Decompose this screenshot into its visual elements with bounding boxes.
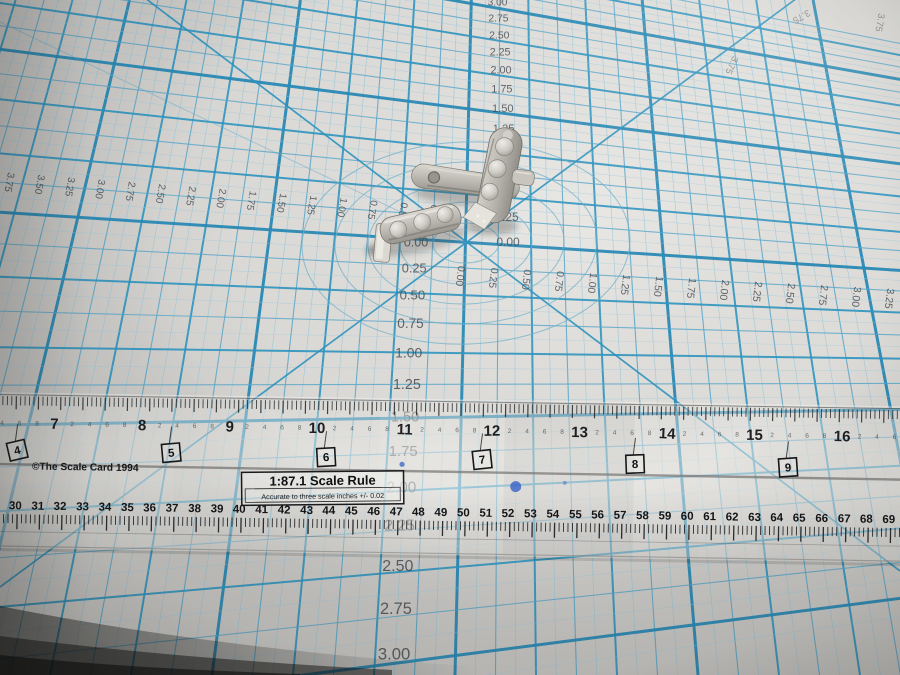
svg-text:4: 4 bbox=[438, 427, 442, 434]
ruler-bottom-number: 31 bbox=[31, 500, 45, 513]
ruler-bottom-number: 62 bbox=[726, 511, 739, 523]
ruler-title: 1:87.1 Scale Rule bbox=[269, 473, 375, 489]
svg-text:6: 6 bbox=[193, 423, 197, 430]
svg-text:6: 6 bbox=[18, 420, 22, 427]
ruler-bottom-number: 65 bbox=[793, 513, 806, 525]
svg-text:6: 6 bbox=[105, 422, 109, 429]
ruler-bottom-number: 57 bbox=[614, 510, 627, 522]
svg-text:2: 2 bbox=[683, 431, 687, 438]
ruler-bottom-number: 41 bbox=[255, 504, 268, 516]
svg-text:2: 2 bbox=[420, 427, 424, 434]
svg-text:8: 8 bbox=[632, 459, 639, 471]
grid-label: 2.00 bbox=[717, 279, 731, 301]
grid-label: 3.25 bbox=[882, 288, 896, 310]
ruler-bottom-number: 50 bbox=[457, 507, 470, 519]
ruler-bottom-number: 67 bbox=[837, 513, 850, 526]
svg-text:4: 4 bbox=[175, 423, 179, 430]
ruler-boxed-number: 8 bbox=[626, 455, 645, 474]
svg-text:4: 4 bbox=[263, 424, 267, 431]
svg-text:6: 6 bbox=[280, 424, 284, 431]
grid-label: 0.00 bbox=[496, 235, 520, 249]
svg-text:8: 8 bbox=[560, 429, 564, 436]
grid-label: 3.00 bbox=[378, 644, 410, 663]
ruler-boxed-number: 5 bbox=[161, 443, 181, 463]
svg-text:4: 4 bbox=[700, 431, 704, 438]
svg-text:8: 8 bbox=[735, 432, 739, 439]
svg-text:8: 8 bbox=[648, 430, 652, 437]
ruler-bottom-number: 68 bbox=[860, 514, 874, 526]
ruler-bottom-number: 46 bbox=[367, 506, 380, 518]
grid-label: 2.50 bbox=[783, 282, 797, 304]
grid-label: 3.00 bbox=[849, 286, 863, 308]
ruler-bottom-number: 55 bbox=[569, 509, 583, 522]
ruler-bottom-number: 69 bbox=[882, 514, 895, 526]
svg-text:6: 6 bbox=[718, 431, 722, 438]
ruler-bottom-number: 59 bbox=[658, 510, 671, 523]
grid-label: 1.00 bbox=[395, 345, 422, 361]
ruler-boxed-number: 7 bbox=[472, 450, 492, 470]
grid-label: 1.50 bbox=[651, 276, 665, 298]
ruler-bottom-number: 44 bbox=[322, 505, 336, 517]
ruler-bottom-number: 53 bbox=[524, 508, 537, 520]
ruler-top-number: 13 bbox=[571, 424, 588, 441]
svg-text:2: 2 bbox=[245, 424, 249, 431]
ruler-bottom-number: 33 bbox=[76, 501, 89, 513]
ruler-bottom-number: 35 bbox=[121, 502, 135, 515]
ruler-bottom-number: 60 bbox=[681, 511, 694, 523]
ruler-bottom-number: 49 bbox=[434, 507, 447, 519]
svg-text:6: 6 bbox=[630, 430, 634, 437]
grid-label: 2.75 bbox=[380, 600, 412, 618]
svg-text:4: 4 bbox=[0, 420, 4, 427]
ruler-bottom-number: 61 bbox=[703, 511, 716, 523]
svg-text:2: 2 bbox=[70, 421, 74, 428]
ruler-boxed-number: 6 bbox=[317, 448, 336, 467]
ruler-top-number: 14 bbox=[658, 425, 676, 443]
grid-label: 2.75 bbox=[488, 14, 508, 25]
grid-label: 0.25 bbox=[402, 260, 427, 275]
ruler-top-number: 12 bbox=[483, 423, 500, 440]
ruler-bottom-number: 37 bbox=[166, 503, 179, 515]
svg-text:8: 8 bbox=[123, 422, 127, 429]
ruler-bottom-number: 48 bbox=[412, 506, 426, 518]
svg-text:8: 8 bbox=[35, 421, 39, 428]
svg-text:4: 4 bbox=[88, 421, 92, 428]
ruler-top-number: 16 bbox=[833, 428, 850, 445]
ruler-title-box: 1:87.1 Scale Rule Accurate to three scal… bbox=[241, 471, 403, 506]
svg-text:8: 8 bbox=[298, 425, 302, 432]
svg-text:6: 6 bbox=[543, 429, 547, 436]
grid-label: 2.25 bbox=[750, 281, 764, 303]
svg-text:6: 6 bbox=[893, 434, 897, 441]
ruler-bottom-number: 43 bbox=[300, 505, 313, 518]
ruler-bottom-number: 52 bbox=[502, 508, 515, 520]
ruler-boxed-number: 9 bbox=[778, 458, 797, 477]
ruler-bottom-number: 66 bbox=[815, 513, 828, 525]
svg-text:4: 4 bbox=[525, 428, 529, 435]
grid-label: 0.25 bbox=[486, 267, 500, 289]
ruler-top-number: 8 bbox=[138, 417, 147, 434]
svg-text:7: 7 bbox=[478, 454, 486, 467]
ruler-bottom-number: 42 bbox=[278, 504, 291, 516]
ruler-bottom-number: 30 bbox=[9, 500, 22, 512]
ruler-bottom-number: 54 bbox=[546, 509, 560, 521]
ruler-top-number: 15 bbox=[746, 427, 763, 444]
ruler-bottom-number: 40 bbox=[233, 504, 246, 516]
ruler-bottom-number: 56 bbox=[591, 509, 604, 521]
ruler-boxed-number: 4 bbox=[6, 439, 28, 461]
svg-text:2: 2 bbox=[508, 428, 512, 435]
ruler-subtitle: Accurate to three scale inches +/- 0.02 bbox=[261, 491, 384, 501]
svg-text:4: 4 bbox=[350, 426, 354, 433]
grid-label: 1.25 bbox=[618, 274, 632, 296]
svg-text:6: 6 bbox=[323, 452, 330, 464]
ruler-top-number: 11 bbox=[396, 421, 412, 438]
svg-text:8: 8 bbox=[210, 423, 214, 430]
svg-text:4: 4 bbox=[875, 434, 879, 441]
grid-label: 2.50 bbox=[382, 558, 413, 575]
grid-label: 2.75 bbox=[816, 284, 830, 306]
grid-label: 1.00 bbox=[585, 272, 599, 294]
grid-label: 2.50 bbox=[489, 29, 510, 41]
ruler-bottom-number: 34 bbox=[98, 501, 112, 513]
svg-text:2: 2 bbox=[770, 432, 774, 439]
ruler-bottom-number: 64 bbox=[770, 512, 784, 524]
svg-text:2: 2 bbox=[158, 422, 162, 429]
ruler-bottom-number: 32 bbox=[54, 501, 67, 513]
svg-text:6: 6 bbox=[805, 433, 809, 440]
grid-label: 3.00 bbox=[488, 0, 508, 9]
grid-label: 0.50 bbox=[400, 288, 426, 303]
svg-text:4: 4 bbox=[613, 430, 617, 437]
svg-text:6: 6 bbox=[368, 426, 372, 433]
grid-label: 0.50 bbox=[519, 269, 533, 291]
svg-text:6: 6 bbox=[455, 427, 459, 434]
ruler-bottom-number: 63 bbox=[748, 512, 761, 525]
grid-label: 1.25 bbox=[393, 377, 421, 393]
svg-text:4: 4 bbox=[788, 432, 792, 439]
paper-light bbox=[0, 0, 900, 675]
svg-text:8: 8 bbox=[823, 433, 827, 440]
metal-tab-right bbox=[511, 169, 535, 187]
ruler-bottom-number: 36 bbox=[143, 502, 156, 514]
ruler-top-number: 10 bbox=[309, 420, 326, 437]
grid-label: 0.75 bbox=[397, 316, 423, 331]
ruler-bottom-number: 58 bbox=[636, 510, 650, 522]
svg-text:9: 9 bbox=[784, 462, 791, 474]
grid-label: 2.00 bbox=[490, 65, 511, 77]
grid-label: 1.75 bbox=[491, 83, 512, 95]
ruler-bottom-number: 47 bbox=[390, 506, 403, 519]
svg-text:8: 8 bbox=[385, 426, 389, 433]
ruler-copyright: ©The Scale Card 1994 bbox=[32, 462, 139, 475]
svg-text:2: 2 bbox=[333, 425, 337, 432]
grid-label: 1.75 bbox=[684, 277, 698, 299]
ruler-bottom-number: 39 bbox=[210, 503, 223, 516]
ruler-top-number: 7 bbox=[50, 416, 59, 433]
ruler-bottom-number: 45 bbox=[345, 505, 358, 517]
ruler-top-number: 9 bbox=[225, 418, 234, 435]
scale-ruler: 78910111213141516 2468246824682468246824… bbox=[0, 393, 900, 565]
ruler-bottom-number: 38 bbox=[188, 503, 202, 515]
grid-label: 0.00 bbox=[453, 265, 467, 287]
photo-scene: 0.000.250.500.751.001.251.501.752.002.25… bbox=[0, 0, 900, 675]
scene-svg: 0.000.250.500.751.001.251.501.752.002.25… bbox=[0, 0, 900, 675]
grid-label: 0.75 bbox=[552, 270, 566, 292]
svg-text:2: 2 bbox=[595, 429, 599, 436]
ruler-bottom-number: 51 bbox=[479, 507, 493, 520]
svg-text:8: 8 bbox=[473, 427, 477, 434]
grid-label: 1.50 bbox=[492, 103, 514, 115]
svg-text:2: 2 bbox=[858, 433, 862, 440]
grid-label: 2.25 bbox=[490, 47, 511, 59]
